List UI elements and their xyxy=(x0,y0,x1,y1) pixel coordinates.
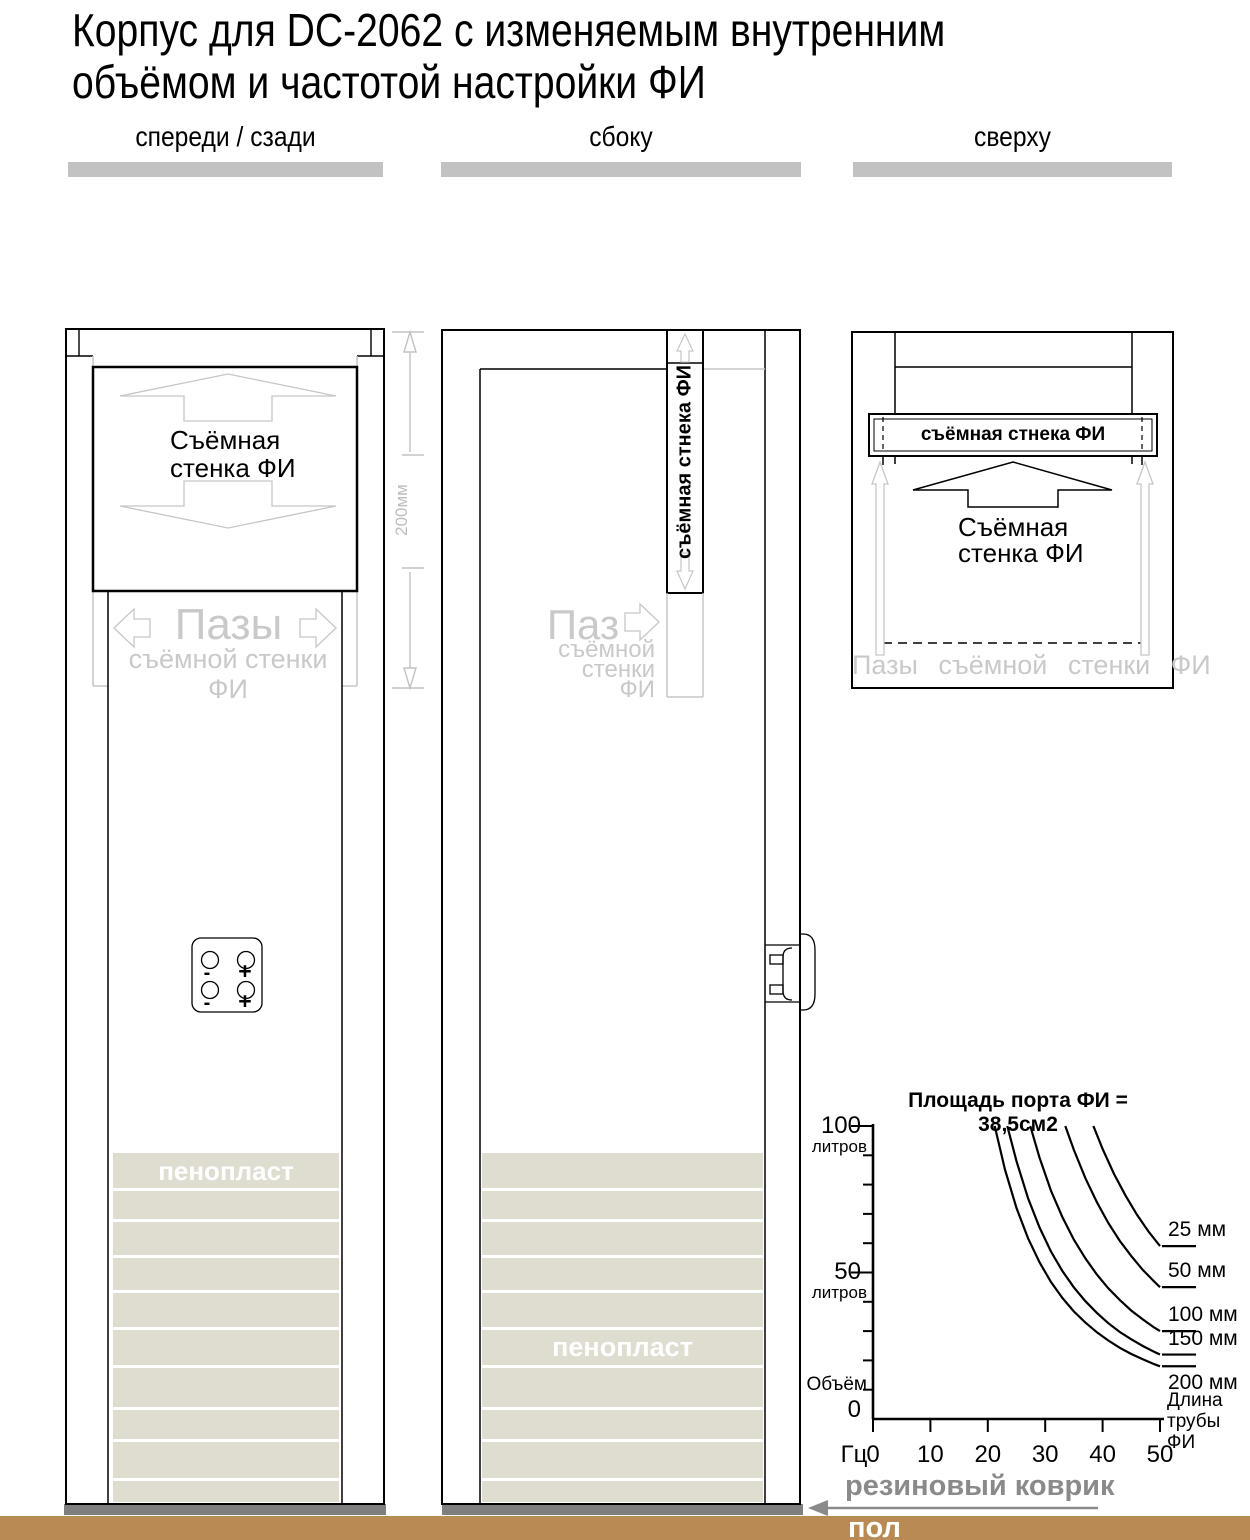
terminal-sign-pos1: + xyxy=(234,958,256,984)
top-panel-label: Съёмная стенка ФИ xyxy=(958,514,1084,566)
curve-label: 200 мм xyxy=(1168,1371,1238,1395)
groove-left-arrow-icon xyxy=(114,609,150,647)
foam-layer xyxy=(113,1293,339,1327)
side-inner-walls xyxy=(480,330,765,1504)
view-label-front: спереди / сзади xyxy=(87,121,364,153)
foam-layer xyxy=(482,1191,763,1219)
page-title-line1: Корпус для DC-2062 с изменяемым внутренн… xyxy=(72,4,945,57)
front-foam-label: пенопласт xyxy=(113,1157,339,1187)
diagram-page: Корпус для DC-2062 с изменяемым внутренн… xyxy=(0,0,1250,1540)
foam-layer xyxy=(482,1222,763,1255)
x-tick-label: 10 xyxy=(910,1441,950,1469)
page-title-line2: объёмом и частотой настройки ФИ xyxy=(72,56,706,109)
foam-layer xyxy=(113,1222,339,1255)
foam-layer xyxy=(482,1481,763,1502)
foam-layer xyxy=(482,1368,763,1407)
terminal-sign-pos2: + xyxy=(234,988,256,1014)
foam-stacks xyxy=(113,1153,763,1502)
curve-label: 100 мм xyxy=(1168,1303,1238,1327)
y-label-0: 0 xyxy=(795,1396,861,1424)
view-label-top: сверху xyxy=(872,121,1153,153)
top-groove-arrow-left-icon xyxy=(872,462,888,655)
side-groove-sub: съёмной стенки ФИ xyxy=(545,640,655,700)
terminal-sign-neg1: - xyxy=(199,962,215,985)
x-tick-label: 20 xyxy=(968,1441,1008,1469)
curve-100 мм xyxy=(1030,1126,1160,1331)
side-view-drawing xyxy=(442,330,815,1504)
floor-label: пол xyxy=(848,1512,901,1540)
diagram-linework xyxy=(0,0,1250,1540)
side-groove-arrow-icon xyxy=(625,604,659,640)
top-bar-label: съёмная стнека ФИ xyxy=(869,424,1157,446)
foam-layer xyxy=(113,1442,339,1478)
x-tick-label: 0 xyxy=(853,1441,893,1469)
y-label-100: 100 xyxy=(795,1112,861,1140)
front-view-drawing xyxy=(66,329,424,1504)
rubber-mat-side xyxy=(442,1504,803,1515)
dimension-label-200mm: 200мм xyxy=(392,484,412,536)
curve-label: 25 мм xyxy=(1168,1218,1226,1242)
view-label-side: сбоку xyxy=(463,121,780,153)
terminal-sign-neg2: - xyxy=(199,992,215,1015)
foam-layer xyxy=(113,1481,339,1502)
front-grooves-title: Пазы xyxy=(151,600,306,651)
curve-50 мм xyxy=(1065,1126,1160,1287)
y-unit-top: литров xyxy=(795,1137,867,1157)
y-unit-mid: литров xyxy=(795,1283,867,1303)
y-label-50: 50 xyxy=(795,1258,861,1286)
rubber-mat-front xyxy=(64,1504,386,1515)
x-tick-label: 30 xyxy=(1025,1441,1065,1469)
foam-layer xyxy=(113,1368,339,1407)
foam-layer xyxy=(482,1410,763,1439)
y-origin-label: Объём xyxy=(795,1374,867,1396)
foam-layer xyxy=(113,1330,339,1365)
foam-layer xyxy=(482,1258,763,1290)
front-top-steps xyxy=(66,329,384,356)
curve-25 мм xyxy=(1093,1126,1160,1246)
foam-stack xyxy=(113,1153,339,1502)
rubber-mat-label: резиновый коврик xyxy=(845,1470,1115,1503)
front-grooves-sub: съёмной стенки xyxy=(128,644,328,675)
chart-canvas xyxy=(851,1124,1196,1432)
top-cabinet-outline xyxy=(852,332,1173,688)
curve-label: 150 мм xyxy=(1168,1327,1238,1351)
foam-stack xyxy=(482,1153,763,1502)
foam-layer xyxy=(113,1191,339,1219)
side-terminal-cup xyxy=(765,934,815,1010)
top-view-drawing xyxy=(852,332,1173,688)
foam-layer xyxy=(482,1153,763,1188)
curve-label: 50 мм xyxy=(1168,1259,1226,1283)
foam-layer xyxy=(113,1258,339,1290)
top-groove-arrow-right-icon xyxy=(1137,462,1153,655)
front-panel-label: Съёмная стенка ФИ xyxy=(170,426,296,482)
side-strip-label: съёмная стнека ФИ xyxy=(674,365,697,559)
side-groove-slot xyxy=(667,593,703,697)
front-grooves-sub2: ФИ xyxy=(128,674,328,705)
chart-title: Площадь порта ФИ = 38,5см2 xyxy=(868,1089,1168,1137)
foam-layer xyxy=(113,1410,339,1439)
foam-layer xyxy=(482,1442,763,1478)
floor-bar xyxy=(0,1516,1250,1540)
foam-layer xyxy=(482,1293,763,1327)
top-insert-arrow-icon xyxy=(913,462,1112,507)
side-cabinet-outline xyxy=(442,330,800,1504)
x-tick-label: 40 xyxy=(1083,1441,1123,1469)
x-tick-label: 50 xyxy=(1140,1441,1180,1469)
side-foam-label: пенопласт xyxy=(482,1332,763,1363)
top-grooves-label: Пазы съёмной стенки ФИ xyxy=(852,650,1173,681)
view-label-bars xyxy=(68,162,1172,177)
